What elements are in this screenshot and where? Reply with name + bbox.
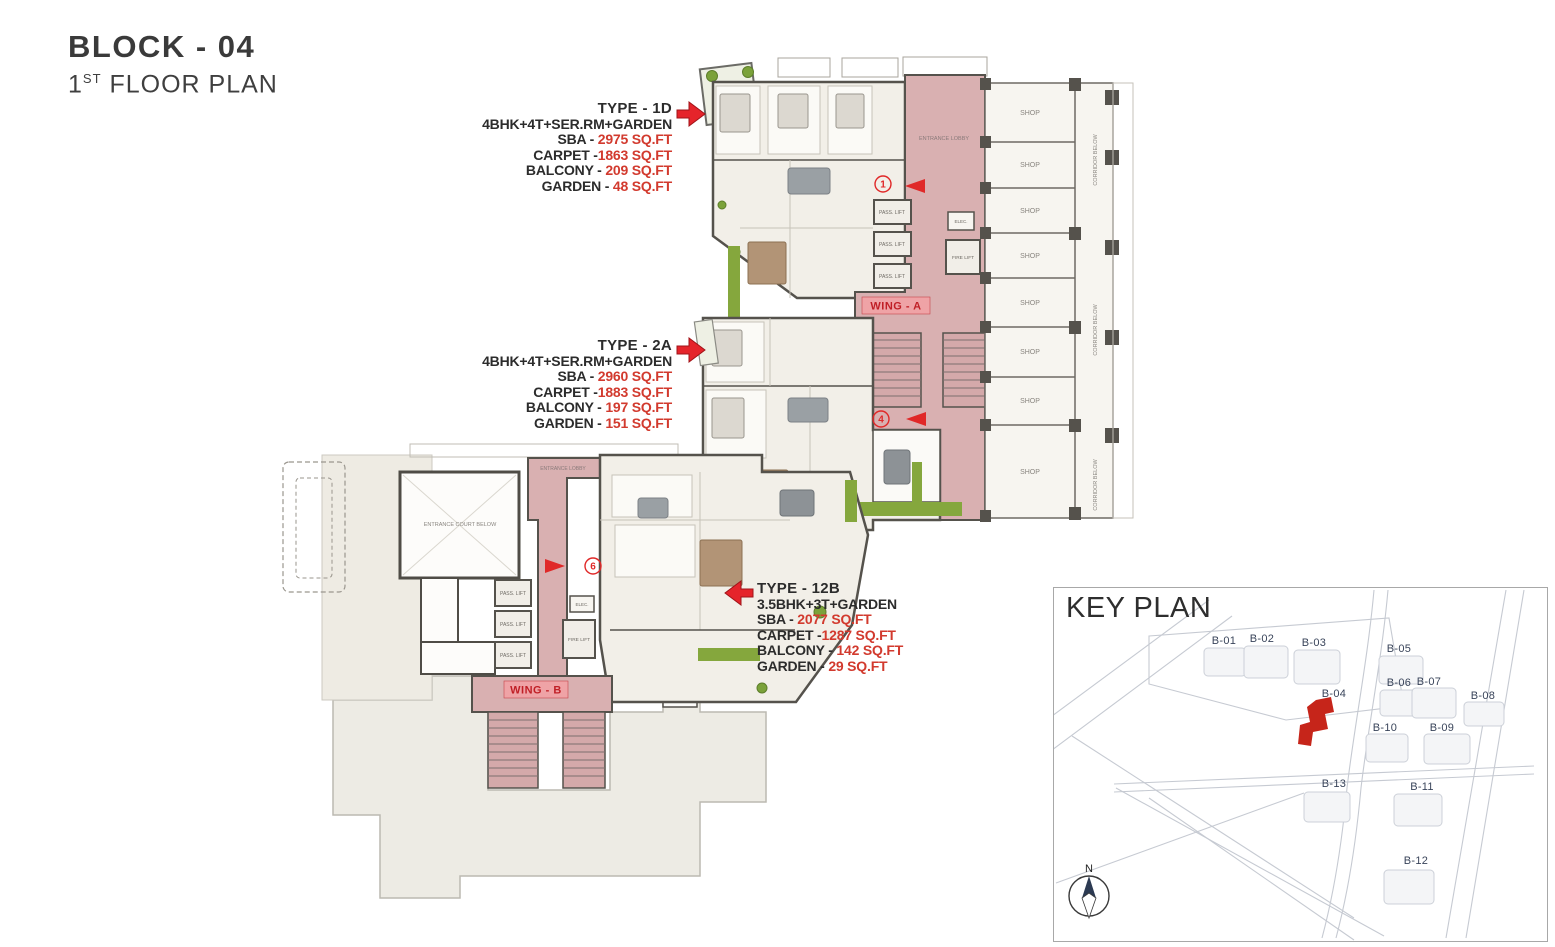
entrance-court-label: ENTRANCE COURT BELOW	[424, 522, 497, 528]
spec-value: 29 SQ.FT	[828, 658, 887, 674]
block-04-highlight	[1298, 697, 1334, 746]
shop-label: SHOP	[1020, 110, 1040, 117]
marker-4: 4	[878, 415, 884, 426]
type-1d-annotation: TYPE - 1D 4BHK+4T+SER.RM+GARDEN SBA - 29…	[410, 101, 672, 194]
key-plan-map	[1054, 588, 1547, 941]
roads	[1054, 590, 1534, 940]
key-plan-block-b13: B-13	[1322, 778, 1346, 790]
key-plan-block-b05: B-05	[1387, 643, 1411, 655]
key-plan-block-b06: B-06	[1387, 677, 1411, 689]
spec-value: 151 SQ.FT	[605, 415, 672, 431]
spec-label: SBA -	[557, 131, 597, 147]
type-2a-config: 4BHK+4T+SER.RM+GARDEN	[410, 354, 672, 370]
shop-label: SHOP	[1020, 398, 1040, 405]
type-2a-annotation: TYPE - 2A 4BHK+4T+SER.RM+GARDEN SBA - 29…	[410, 338, 672, 431]
fire-lift-label: FIRE LIFT	[568, 637, 590, 643]
shop-label: SHOP	[1020, 208, 1040, 215]
marker-1: 1	[880, 180, 886, 191]
spec-value: 48 SQ.FT	[613, 178, 672, 194]
spec-label: BALCONY -	[526, 399, 605, 415]
spec-value: 1863 SQ.FT	[598, 147, 672, 163]
type-1d-arrow	[677, 102, 705, 126]
spec-row: GARDEN - 151 SQ.FT	[410, 416, 672, 432]
shop-label: SHOP	[1020, 253, 1040, 260]
pass-lift-label: PASS. LIFT	[500, 653, 526, 659]
spec-value: 197 SQ.FT	[605, 399, 672, 415]
pass-lift-label: PASS. LIFT	[500, 622, 526, 628]
spec-row: SBA - 2975 SQ.FT	[410, 132, 672, 148]
marker-6: 6	[590, 562, 596, 573]
spec-row: GARDEN - 48 SQ.FT	[410, 179, 672, 195]
shop-label: SHOP	[1020, 349, 1040, 356]
key-plan-block-b07: B-07	[1417, 676, 1441, 688]
shop-label: SHOP	[1020, 469, 1040, 476]
corridor-below-label: CORRIDOR BELOW	[1093, 459, 1099, 511]
key-plan-block-b11: B-11	[1410, 781, 1434, 793]
spec-row: CARPET -1863 SQ.FT	[410, 148, 672, 164]
pass-lift-label: PASS. LIFT	[879, 210, 905, 216]
type-12b-heading: TYPE - 12B	[757, 581, 1019, 597]
key-plan-block-b03: B-03	[1302, 637, 1326, 649]
shop-label: SHOP	[1020, 162, 1040, 169]
spec-value: 1883 SQ.FT	[598, 384, 672, 400]
key-plan-block-b10: B-10	[1373, 722, 1397, 734]
spec-label: SBA -	[757, 611, 797, 627]
spec-value: 2077 SQ.FT	[797, 611, 871, 627]
key-plan-title: KEY PLAN	[1066, 592, 1211, 625]
spec-label: CARPET -	[533, 384, 598, 400]
compass-icon	[1069, 876, 1109, 918]
stairs-wing-b	[488, 712, 605, 788]
entrance-lobby-label-a: ENTRANCE LOBBY	[919, 136, 969, 142]
elec-label: ELEC.	[954, 219, 967, 224]
spec-label: BALCONY -	[757, 642, 836, 658]
fire-lift-label: FIRE LIFT	[952, 255, 974, 261]
garden-strip-12b	[698, 648, 760, 661]
key-plan-block-b12: B-12	[1404, 855, 1428, 867]
shop-label: SHOP	[1020, 300, 1040, 307]
type-12b-annotation: TYPE - 12B 3.5BHK+3T+GARDEN SBA - 2077 S…	[757, 581, 1019, 674]
shops-column: SHOP SHOP SHOP SHOP SHOP SHOP SHOP SHOP …	[980, 78, 1133, 522]
wing-b-tag: WING - B	[510, 685, 562, 697]
spec-label: CARPET -	[757, 627, 822, 643]
spec-row: GARDEN - 29 SQ.FT	[757, 659, 1019, 675]
elec-label: ELEC.	[575, 602, 588, 607]
key-plan-block-b09: B-09	[1430, 722, 1454, 734]
key-plan-block-b01: B-01	[1212, 635, 1236, 647]
floor-number: 1	[68, 70, 83, 98]
spec-label: BALCONY -	[526, 162, 605, 178]
spec-label: GARDEN -	[542, 178, 613, 194]
spec-value: 2975 SQ.FT	[598, 131, 672, 147]
key-plan: KEY PLAN N B-01 B-02 B-03 B-04 B-05 B-06…	[1053, 587, 1548, 942]
pass-lift-label: PASS. LIFT	[879, 274, 905, 280]
pass-lift-label: PASS. LIFT	[879, 242, 905, 248]
spec-row: BALCONY - 197 SQ.FT	[410, 400, 672, 416]
pass-lift-label: PASS. LIFT	[500, 591, 526, 597]
spec-value: 142 SQ.FT	[836, 642, 903, 658]
spec-label: SBA -	[557, 368, 597, 384]
spec-value: 209 SQ.FT	[605, 162, 672, 178]
spec-row: CARPET -1883 SQ.FT	[410, 385, 672, 401]
floor-title: 1ST FLOOR PLAN	[68, 64, 278, 99]
type-2a-heading: TYPE - 2A	[410, 338, 672, 354]
type-1d-config: 4BHK+4T+SER.RM+GARDEN	[410, 117, 672, 133]
corridor-below-label: CORRIDOR BELOW	[1093, 134, 1099, 186]
spec-label: CARPET -	[533, 147, 598, 163]
floor-plan-page: PASS. LIFT PASS. LIFT PASS. LIFT ELEC. F…	[0, 0, 1555, 947]
spec-value: 1287 SQ.FT	[822, 627, 896, 643]
spec-row: CARPET -1287 SQ.FT	[757, 628, 1019, 644]
corridor-below-label: CORRIDOR BELOW	[1093, 304, 1099, 356]
type-12b-config: 3.5BHK+3T+GARDEN	[757, 597, 1019, 613]
block-title: BLOCK - 04	[68, 30, 278, 64]
floor-ordinal: ST	[83, 71, 102, 86]
wing-a-tag: WING - A	[870, 301, 921, 313]
key-plan-block-b02: B-02	[1250, 633, 1274, 645]
compass-north-label: N	[1085, 863, 1093, 875]
spec-row: BALCONY - 142 SQ.FT	[757, 643, 1019, 659]
spec-label: GARDEN -	[757, 658, 828, 674]
entrance-lobby-label-b: ENTRANCE LOBBY	[540, 466, 586, 472]
spec-row: BALCONY - 209 SQ.FT	[410, 163, 672, 179]
type-1d-heading: TYPE - 1D	[410, 101, 672, 117]
spec-value: 2960 SQ.FT	[598, 368, 672, 384]
spec-row: SBA - 2077 SQ.FT	[757, 612, 1019, 628]
page-title: BLOCK - 04 1ST FLOOR PLAN	[68, 30, 278, 99]
key-plan-block-b08: B-08	[1471, 690, 1495, 702]
spec-label: GARDEN -	[534, 415, 605, 431]
key-plan-block-b04: B-04	[1322, 688, 1346, 700]
floor-label: FLOOR PLAN	[102, 70, 278, 98]
spec-row: SBA - 2960 SQ.FT	[410, 369, 672, 385]
